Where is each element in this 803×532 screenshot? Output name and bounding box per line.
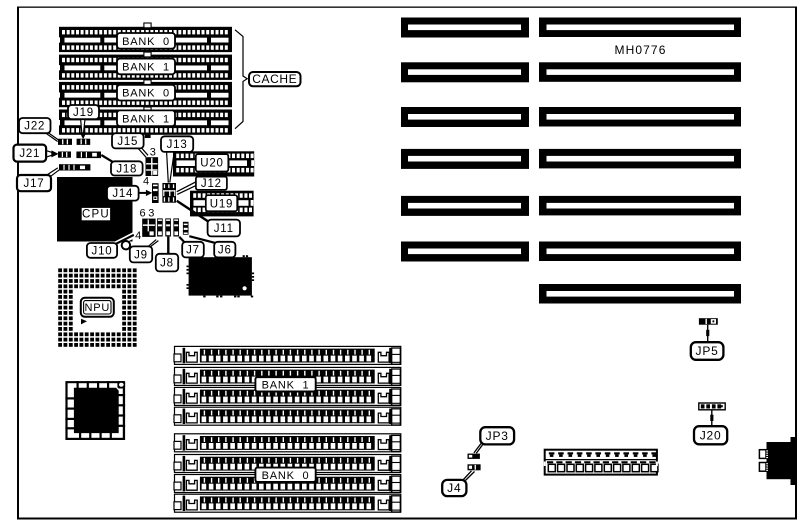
svg-text:U19: U19: [210, 198, 234, 210]
svg-text:J11: J11: [214, 223, 234, 235]
svg-text:3: 3: [150, 146, 156, 158]
svg-text:3: 3: [148, 208, 154, 220]
svg-text:J10: J10: [92, 245, 113, 257]
svg-text:J4: J4: [447, 481, 461, 495]
svg-text:J7: J7: [186, 245, 200, 257]
svg-text:JP3: JP3: [486, 429, 509, 443]
svg-text:J9: J9: [134, 249, 148, 261]
svg-text:J17: J17: [24, 178, 45, 190]
svg-text:BANK 1: BANK 1: [262, 379, 310, 391]
svg-text:4: 4: [143, 176, 149, 188]
svg-text:NPU: NPU: [84, 302, 110, 314]
svg-text:BANK 0: BANK 0: [262, 470, 310, 482]
svg-text:J8: J8: [160, 258, 174, 270]
svg-text:J15: J15: [117, 136, 138, 148]
svg-text:MH0776: MH0776: [615, 43, 667, 57]
svg-text:J21: J21: [19, 148, 40, 160]
svg-text:J6: J6: [218, 245, 232, 257]
svg-text:CPU: CPU: [82, 209, 110, 221]
svg-text:J12: J12: [201, 178, 222, 190]
svg-text:6: 6: [139, 208, 145, 220]
svg-text:J13: J13: [167, 139, 188, 151]
svg-text:J14: J14: [112, 188, 133, 200]
svg-text:BANK 1: BANK 1: [122, 113, 170, 125]
svg-text:BANK 1: BANK 1: [122, 61, 170, 73]
svg-text:J20: J20: [700, 428, 722, 442]
svg-text:4: 4: [135, 230, 141, 242]
svg-text:JP5: JP5: [696, 344, 719, 358]
svg-text:J22: J22: [24, 121, 45, 133]
svg-text:J18: J18: [116, 163, 137, 175]
svg-text:U20: U20: [200, 158, 224, 170]
svg-text:J19: J19: [73, 107, 94, 119]
svg-text:BANK 0: BANK 0: [122, 36, 170, 48]
svg-text:BANK 0: BANK 0: [122, 88, 170, 100]
svg-text:CACHE: CACHE: [252, 72, 297, 86]
